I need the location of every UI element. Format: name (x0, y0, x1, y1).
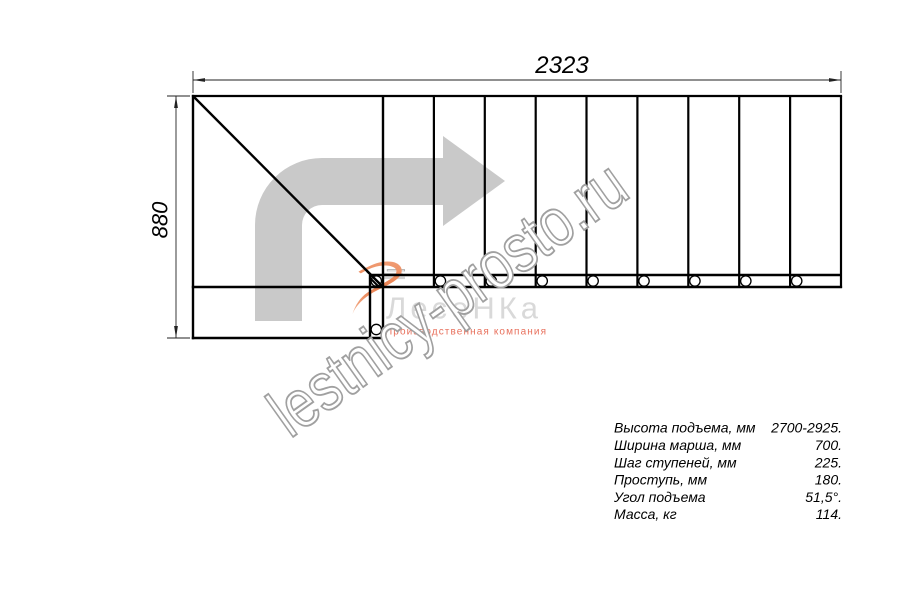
svg-text:2323: 2323 (534, 52, 589, 79)
svg-text:Угол подъема: Угол подъема (613, 489, 706, 505)
svg-text:2700-2925.: 2700-2925. (770, 420, 842, 436)
svg-text:Масса, кг: Масса, кг (614, 506, 677, 522)
svg-text:Шаг ступеней, мм: Шаг ступеней, мм (614, 454, 737, 470)
svg-text:880: 880 (148, 201, 173, 238)
svg-text:225.: 225. (814, 454, 842, 470)
svg-text:Высота подъема, мм: Высота подъема, мм (614, 420, 756, 436)
svg-text:114.: 114. (816, 506, 842, 522)
svg-text:700.: 700. (815, 437, 842, 453)
svg-text:Ширина марша, мм: Ширина марша, мм (614, 437, 742, 453)
svg-text:51,5°.: 51,5°. (805, 489, 842, 505)
svg-text:Проступь, мм: Проступь, мм (614, 472, 708, 488)
svg-text:180.: 180. (815, 472, 842, 488)
